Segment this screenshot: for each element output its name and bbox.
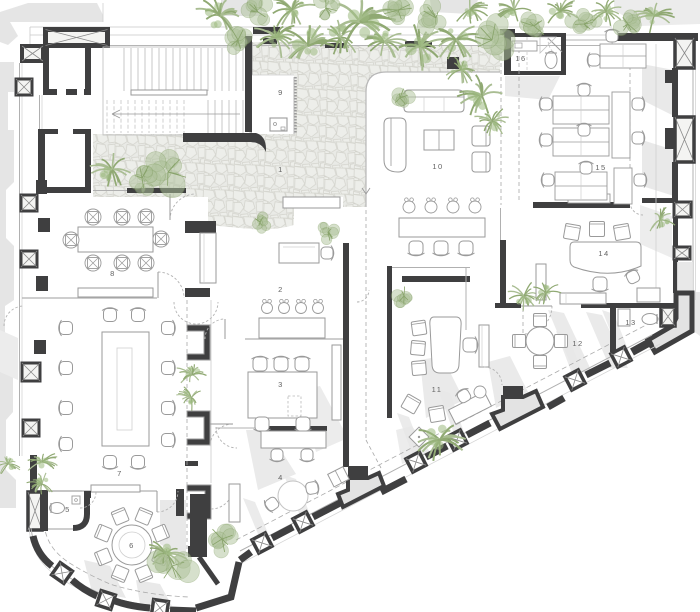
svg-text:10: 10 — [432, 162, 443, 171]
svg-text:15: 15 — [595, 163, 606, 172]
svg-text:5: 5 — [65, 505, 71, 514]
svg-text:8: 8 — [110, 269, 116, 278]
svg-text:7: 7 — [117, 469, 123, 478]
svg-text:9: 9 — [278, 88, 284, 97]
svg-text:12: 12 — [572, 339, 583, 348]
svg-text:2: 2 — [278, 285, 284, 294]
svg-text:16: 16 — [515, 54, 526, 63]
svg-text:11: 11 — [432, 385, 443, 394]
svg-text:4: 4 — [278, 473, 284, 482]
svg-text:1: 1 — [278, 165, 284, 174]
svg-text:3: 3 — [278, 380, 284, 389]
svg-text:14: 14 — [598, 249, 609, 258]
svg-text:13: 13 — [625, 318, 636, 327]
svg-text:6: 6 — [129, 541, 135, 550]
